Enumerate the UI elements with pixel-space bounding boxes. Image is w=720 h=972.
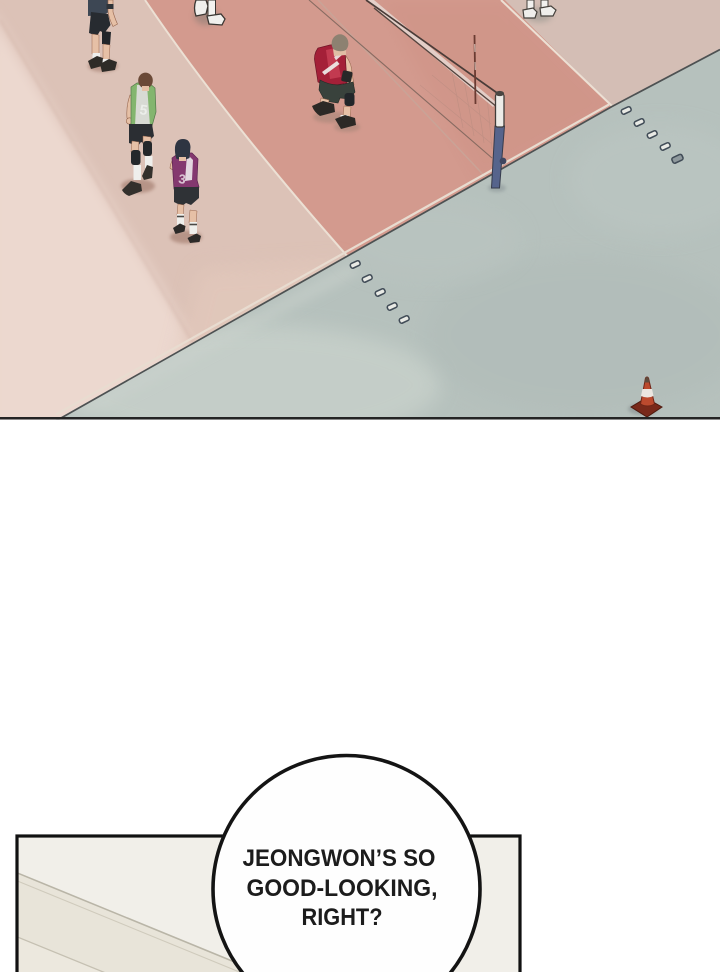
svg-text:RIGHT?: RIGHT?: [302, 904, 383, 931]
svg-text:JEONGWON’S SO: JEONGWON’S SO: [243, 845, 436, 872]
svg-text:GOOD-LOOKING,: GOOD-LOOKING,: [247, 875, 438, 902]
